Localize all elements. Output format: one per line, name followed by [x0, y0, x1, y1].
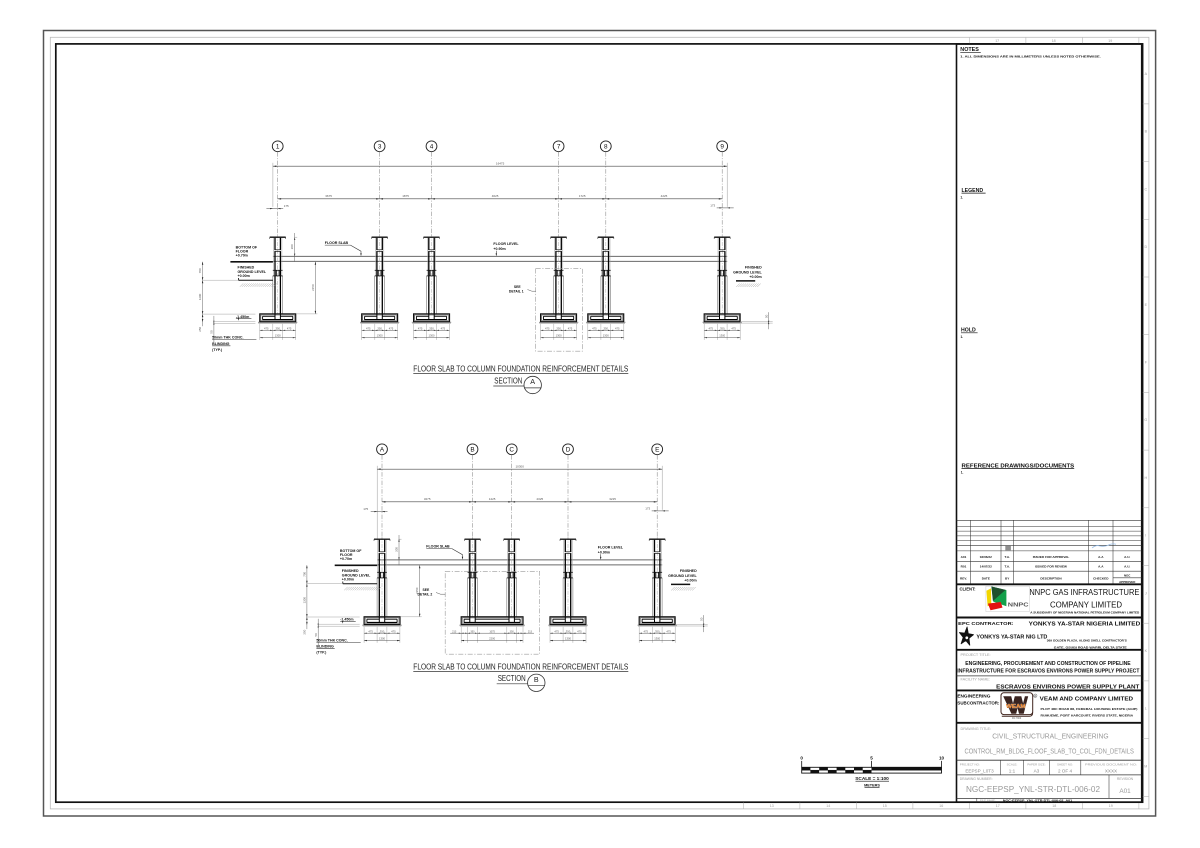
svg-text:METERS: METERS — [864, 784, 880, 788]
svg-text:50: 50 — [314, 633, 318, 637]
svg-text:+0.90m: +0.90m — [493, 247, 505, 251]
svg-text:350: 350 — [720, 326, 725, 330]
svg-text:SEE: SEE — [423, 588, 431, 592]
svg-text:R: R — [1034, 695, 1036, 698]
svg-text:DRAWING NUMBER:: DRAWING NUMBER: — [960, 777, 993, 781]
svg-text:350: 350 — [556, 326, 561, 330]
svg-text:475: 475 — [731, 326, 736, 330]
svg-text:7: 7 — [557, 144, 561, 151]
svg-text:16475: 16475 — [496, 162, 505, 166]
svg-text:3275: 3275 — [424, 497, 431, 501]
svg-text:PROJECT TITLE:: PROJECT TITLE: — [961, 653, 991, 657]
svg-text:PREVIOUS DOCUMENT NO:: PREVIOUS DOCUMENT NO: — [1085, 762, 1137, 766]
svg-text:50mm THK CONC.: 50mm THK CONC. — [212, 336, 243, 340]
svg-text:1300: 1300 — [719, 334, 725, 338]
svg-text:FINISHED: FINISHED — [745, 266, 762, 270]
svg-text:1300: 1300 — [275, 334, 281, 338]
svg-text:475: 475 — [615, 326, 620, 330]
svg-text:PLOT 48C ROAD 88, FEDERAL HOUS: PLOT 48C ROAD 88, FEDERAL HOUSING ESTATE… — [1041, 707, 1138, 711]
svg-text:ENGINEERING, PROCUREMENT AND C: ENGINEERING, PROCUREMENT AND CONSTRUCTIO… — [965, 661, 1131, 667]
svg-text:475: 475 — [264, 326, 269, 330]
svg-text:(TYP.): (TYP.) — [316, 651, 327, 655]
svg-text:475: 475 — [554, 629, 559, 633]
svg-text:NGC: NGC — [1124, 574, 1131, 578]
svg-text:1. ALL DIMENSIONS ARE IN MILLI: 1. ALL DIMENSIONS ARE IN MILLIMETERS UNL… — [960, 54, 1101, 58]
svg-text:DESCRIPTION: DESCRIPTION — [1040, 576, 1062, 580]
svg-text:1300: 1300 — [429, 334, 435, 338]
svg-text:17: 17 — [996, 804, 1000, 808]
svg-text:0: 0 — [800, 756, 803, 761]
svg-text:YONKYS YA-STAR NIGERIA LIMITED: YONKYS YA-STAR NIGERIA LIMITED — [1029, 622, 1141, 628]
svg-text:A.A: A.A — [1098, 565, 1104, 569]
svg-text:213: 213 — [452, 630, 457, 633]
svg-text:REV.: REV. — [960, 576, 967, 580]
svg-text:SECTION: SECTION — [494, 376, 522, 385]
svg-text:350: 350 — [377, 326, 382, 330]
svg-text:18: 18 — [1052, 804, 1056, 808]
svg-text:B: B — [470, 447, 474, 454]
svg-text:4625: 4625 — [492, 194, 499, 198]
svg-text:I: I — [1145, 534, 1146, 538]
svg-text:G: G — [1144, 418, 1147, 422]
svg-text:17: 17 — [995, 39, 999, 43]
svg-text:A.A: A.A — [1098, 555, 1104, 559]
svg-text:8: 8 — [604, 144, 608, 151]
svg-text:GROUND LEVEL: GROUND LEVEL — [668, 574, 697, 578]
svg-text:+0.70m: +0.70m — [236, 254, 248, 258]
svg-text:173: 173 — [645, 507, 650, 511]
svg-text:B: B — [534, 675, 539, 684]
svg-text:FLOOR LEVEL: FLOOR LEVEL — [493, 242, 519, 246]
svg-text:3225: 3225 — [609, 497, 616, 501]
svg-text:350: 350 — [510, 630, 515, 633]
svg-text:A: A — [380, 447, 385, 454]
svg-text:SCALE = 1:100: SCALE = 1:100 — [855, 776, 889, 781]
svg-text:02/06/22: 02/06/22 — [980, 555, 992, 559]
svg-text:FINISHED: FINISHED — [680, 569, 697, 573]
svg-text:1.: 1. — [961, 335, 964, 339]
svg-text:250: 250 — [198, 326, 202, 331]
svg-text:+0.70m: +0.70m — [340, 557, 352, 561]
svg-text:369 GOLDEN PLAZA, ALONG SHELL: 369 GOLDEN PLAZA, ALONG SHELL CONTRACTOR… — [1047, 639, 1127, 643]
svg-text:CIVIL_STRUCTURAL_ENGINEERING: CIVIL_STRUCTURAL_ENGINEERING — [992, 734, 1108, 741]
svg-text:H: H — [1144, 476, 1147, 480]
svg-text:2 OF 4: 2 OF 4 — [1058, 768, 1072, 773]
svg-text:CHECKED: CHECKED — [1093, 576, 1109, 580]
svg-text:DRAWING TITLE:: DRAWING TITLE: — [961, 727, 992, 731]
svg-text:175: 175 — [363, 507, 368, 511]
svg-text:700: 700 — [198, 268, 202, 273]
svg-text:GATE, OSUBI ROAD WARRI, DELTA: GATE, OSUBI ROAD WARRI, DELTA STATE — [1054, 646, 1127, 650]
svg-text:475: 475 — [287, 326, 292, 330]
svg-text:475: 475 — [366, 326, 371, 330]
svg-text:VEAM AND COMPANY LIMITED: VEAM AND COMPANY LIMITED — [1040, 696, 1134, 702]
svg-text:FLOOR SLAB TO COLUMN FOUNDATIO: FLOOR SLAB TO COLUMN FOUNDATION REINFORC… — [413, 663, 628, 672]
svg-text:T.A.: T.A. — [1004, 565, 1010, 569]
svg-text:200: 200 — [394, 547, 398, 552]
svg-text:18: 18 — [1052, 39, 1056, 43]
svg-text:475: 475 — [709, 326, 714, 330]
svg-text:350: 350 — [470, 630, 475, 633]
svg-text:C: C — [509, 447, 514, 454]
svg-text:475: 475 — [368, 629, 373, 633]
svg-text:2025: 2025 — [537, 497, 544, 501]
svg-text:WEAM: WEAM — [1006, 704, 1026, 710]
svg-text:3675: 3675 — [325, 194, 332, 198]
svg-text:DATE: DATE — [982, 576, 990, 580]
svg-text:FILE NAME:: FILE NAME: — [980, 799, 996, 803]
svg-text:ISSUED FOR REVIEW: ISSUED FOR REVIEW — [1035, 565, 1067, 569]
svg-text:475: 475 — [577, 629, 582, 633]
svg-text:4225: 4225 — [661, 194, 668, 198]
svg-text:50: 50 — [764, 314, 768, 318]
svg-text:475: 475 — [568, 326, 573, 330]
svg-text:+0.00m: +0.00m — [749, 275, 761, 279]
svg-text:1875: 1875 — [402, 194, 409, 198]
svg-text:475: 475 — [418, 326, 423, 330]
svg-text:FINISHED: FINISHED — [342, 569, 359, 573]
svg-text:SHEET NO:: SHEET NO: — [1057, 762, 1073, 766]
svg-text:NNPC GAS INFRASTRUCTURE: NNPC GAS INFRASTRUCTURE — [1029, 587, 1139, 597]
svg-text:350: 350 — [566, 629, 571, 633]
svg-text:GROUND LEVEL: GROUND LEVEL — [733, 271, 762, 275]
svg-text:173: 173 — [710, 204, 715, 208]
svg-text:+0.00m: +0.00m — [684, 578, 696, 582]
svg-text:NGC-EEPSP_YNL-STR-DTL-006-02_A: NGC-EEPSP_YNL-STR-DTL-006-02_A01 — [1003, 799, 1073, 803]
svg-text:SUBCONTRACTOR:: SUBCONTRACTOR: — [957, 701, 1000, 706]
svg-text:SCALE:: SCALE: — [1007, 762, 1018, 766]
svg-text:350: 350 — [655, 629, 660, 633]
svg-text:ENGINEERING: ENGINEERING — [957, 693, 991, 698]
svg-text:1425: 1425 — [489, 497, 496, 501]
svg-text:DETAIL 2: DETAIL 2 — [418, 593, 433, 597]
svg-text:CLIENT:: CLIENT: — [960, 587, 976, 592]
svg-text:A.U.: A.U. — [1124, 565, 1130, 569]
svg-text:+0.00m: +0.00m — [342, 578, 354, 582]
svg-text:50mm THK CONC.: 50mm THK CONC. — [316, 638, 347, 642]
svg-text:250: 250 — [303, 629, 307, 634]
svg-text:2200: 2200 — [489, 637, 495, 641]
svg-text:50: 50 — [699, 617, 703, 621]
svg-text:FLOOR LEVEL: FLOOR LEVEL — [598, 546, 624, 550]
svg-text:BLINDING: BLINDING — [212, 342, 230, 346]
svg-text:FACILITY NAME:: FACILITY NAME: — [961, 678, 990, 682]
svg-text:COMPANY LIMITED: COMPANY LIMITED — [1050, 600, 1122, 610]
svg-text:L: L — [1145, 707, 1147, 711]
svg-text:4: 4 — [430, 144, 434, 151]
svg-text:213: 213 — [528, 630, 533, 633]
svg-text:14/07/22: 14/07/22 — [980, 565, 992, 569]
svg-text:+0.00m: +0.00m — [238, 274, 250, 278]
svg-text:YONKYS YA-STAR NIG LTD: YONKYS YA-STAR NIG LTD — [976, 635, 1047, 641]
svg-text:10: 10 — [939, 756, 945, 761]
svg-text:475: 475 — [389, 326, 394, 330]
svg-text:1200: 1200 — [303, 597, 307, 604]
svg-text:1300: 1300 — [556, 334, 562, 338]
svg-text:15: 15 — [883, 804, 887, 808]
svg-text:ISSUED FOR APPROVAL: ISSUED FOR APPROVAL — [1033, 555, 1070, 559]
svg-text:EEPSP_L0T3: EEPSP_L0T3 — [965, 768, 994, 773]
svg-text:A01: A01 — [1119, 788, 1131, 795]
svg-text:1:1: 1:1 — [1009, 768, 1016, 773]
svg-text:RC 7000: RC 7000 — [1012, 718, 1022, 720]
svg-text:A01: A01 — [961, 555, 967, 559]
svg-text:A3: A3 — [1034, 768, 1040, 773]
svg-text:350: 350 — [429, 326, 434, 330]
svg-text:1200: 1200 — [198, 293, 202, 300]
svg-text:EPC CONTRACTOR:: EPC CONTRACTOR: — [958, 621, 1014, 626]
svg-text:350: 350 — [604, 326, 609, 330]
svg-text:19: 19 — [1108, 39, 1112, 43]
svg-text:DETAIL 1: DETAIL 1 — [509, 290, 524, 294]
svg-text:2150: 2150 — [311, 284, 315, 291]
svg-text:1.: 1. — [960, 196, 963, 200]
svg-text:16: 16 — [939, 804, 943, 808]
svg-text:14: 14 — [826, 804, 830, 808]
svg-text:475: 475 — [644, 629, 649, 633]
svg-text:+0.90m: +0.90m — [598, 550, 610, 554]
svg-text:INFRASTRUCTURE FOR ESCRAVOS EN: INFRASTRUCTURE FOR ESCRAVOS ENVIRONS POW… — [957, 668, 1139, 674]
svg-text:ESCRAVOS ENVIRONS POWER SUPPLY: ESCRAVOS ENVIRONS POWER SUPPLY PLANT — [996, 684, 1140, 690]
svg-text:1.: 1. — [961, 471, 964, 475]
svg-text:50: 50 — [210, 330, 214, 334]
svg-text:D: D — [1144, 245, 1147, 249]
svg-text:BLINDING: BLINDING — [316, 645, 334, 649]
svg-text:XXXX: XXXX — [1105, 768, 1117, 773]
svg-text:13: 13 — [770, 804, 774, 808]
svg-text:1300: 1300 — [603, 334, 609, 338]
svg-text:C: C — [1144, 187, 1147, 191]
svg-text:175: 175 — [284, 204, 289, 208]
svg-text:FLOOR SLAB TO COLUMN FOUNDATIO: FLOOR SLAB TO COLUMN FOUNDATION REINFORC… — [413, 365, 628, 374]
svg-text:3: 3 — [378, 144, 382, 151]
svg-text:475: 475 — [666, 629, 671, 633]
svg-text:475: 475 — [441, 326, 446, 330]
svg-text:1300: 1300 — [654, 637, 660, 641]
svg-text:A SUBSIDIARY OF NIGERIAN NATIO: A SUBSIDIARY OF NIGERIAN NATIONAL PETROL… — [1030, 611, 1139, 615]
svg-text:NGC-EEPSP_YNL-STR-DTL-006-02: NGC-EEPSP_YNL-STR-DTL-006-02 — [966, 785, 1100, 794]
svg-text:1: 1 — [276, 144, 280, 151]
svg-text:10300: 10300 — [516, 465, 525, 469]
svg-text:PAPER SIZE:: PAPER SIZE: — [1027, 762, 1045, 766]
svg-text:J: J — [1145, 591, 1147, 595]
svg-text:5: 5 — [870, 756, 873, 761]
svg-text:(TYP.): (TYP.) — [212, 348, 223, 352]
svg-text:1725: 1725 — [579, 194, 586, 198]
svg-text:PROJECT NO:: PROJECT NO: — [960, 762, 980, 766]
svg-text:T.A.: T.A. — [1004, 555, 1010, 559]
svg-text:475: 475 — [592, 326, 597, 330]
svg-text:9: 9 — [720, 144, 724, 151]
svg-text:E: E — [655, 447, 659, 454]
svg-text:1300: 1300 — [377, 334, 383, 338]
svg-text:1300: 1300 — [565, 637, 571, 641]
svg-text:NNPC: NNPC — [1008, 602, 1029, 608]
svg-text:1300: 1300 — [379, 637, 385, 641]
svg-text:700: 700 — [303, 571, 307, 576]
svg-text:200: 200 — [290, 244, 294, 249]
svg-text:19: 19 — [1109, 804, 1113, 808]
svg-text:350: 350 — [275, 326, 280, 330]
svg-text:CONTROL_RM_BLDG_FLOOF_SLAB_TO_: CONTROL_RM_BLDG_FLOOF_SLAB_TO_COL_FDN_DE… — [965, 748, 1135, 755]
svg-text:M: M — [1144, 764, 1147, 768]
svg-text:D: D — [566, 447, 571, 454]
svg-text:1075: 1075 — [489, 630, 495, 633]
svg-text:FLOOR SLAB: FLOOR SLAB — [325, 241, 349, 245]
svg-text:REVISION: REVISION — [1117, 777, 1134, 781]
svg-text:475: 475 — [391, 629, 396, 633]
svg-text:A: A — [530, 377, 535, 386]
svg-text:RUMUEME, PORT HARCOURT, RIVERS: RUMUEME, PORT HARCOURT, RIVERS STATE, NI… — [1041, 713, 1134, 717]
svg-text:SEE: SEE — [514, 285, 522, 289]
svg-text:475: 475 — [545, 326, 550, 330]
svg-text:SECTION: SECTION — [498, 674, 526, 683]
svg-text:350: 350 — [380, 629, 385, 633]
svg-text:R01: R01 — [961, 565, 967, 569]
svg-text:A.U.: A.U. — [1124, 555, 1130, 559]
svg-text:FINISHED: FINISHED — [238, 265, 255, 269]
svg-text:FLOOR SLAB: FLOOR SLAB — [426, 545, 450, 549]
